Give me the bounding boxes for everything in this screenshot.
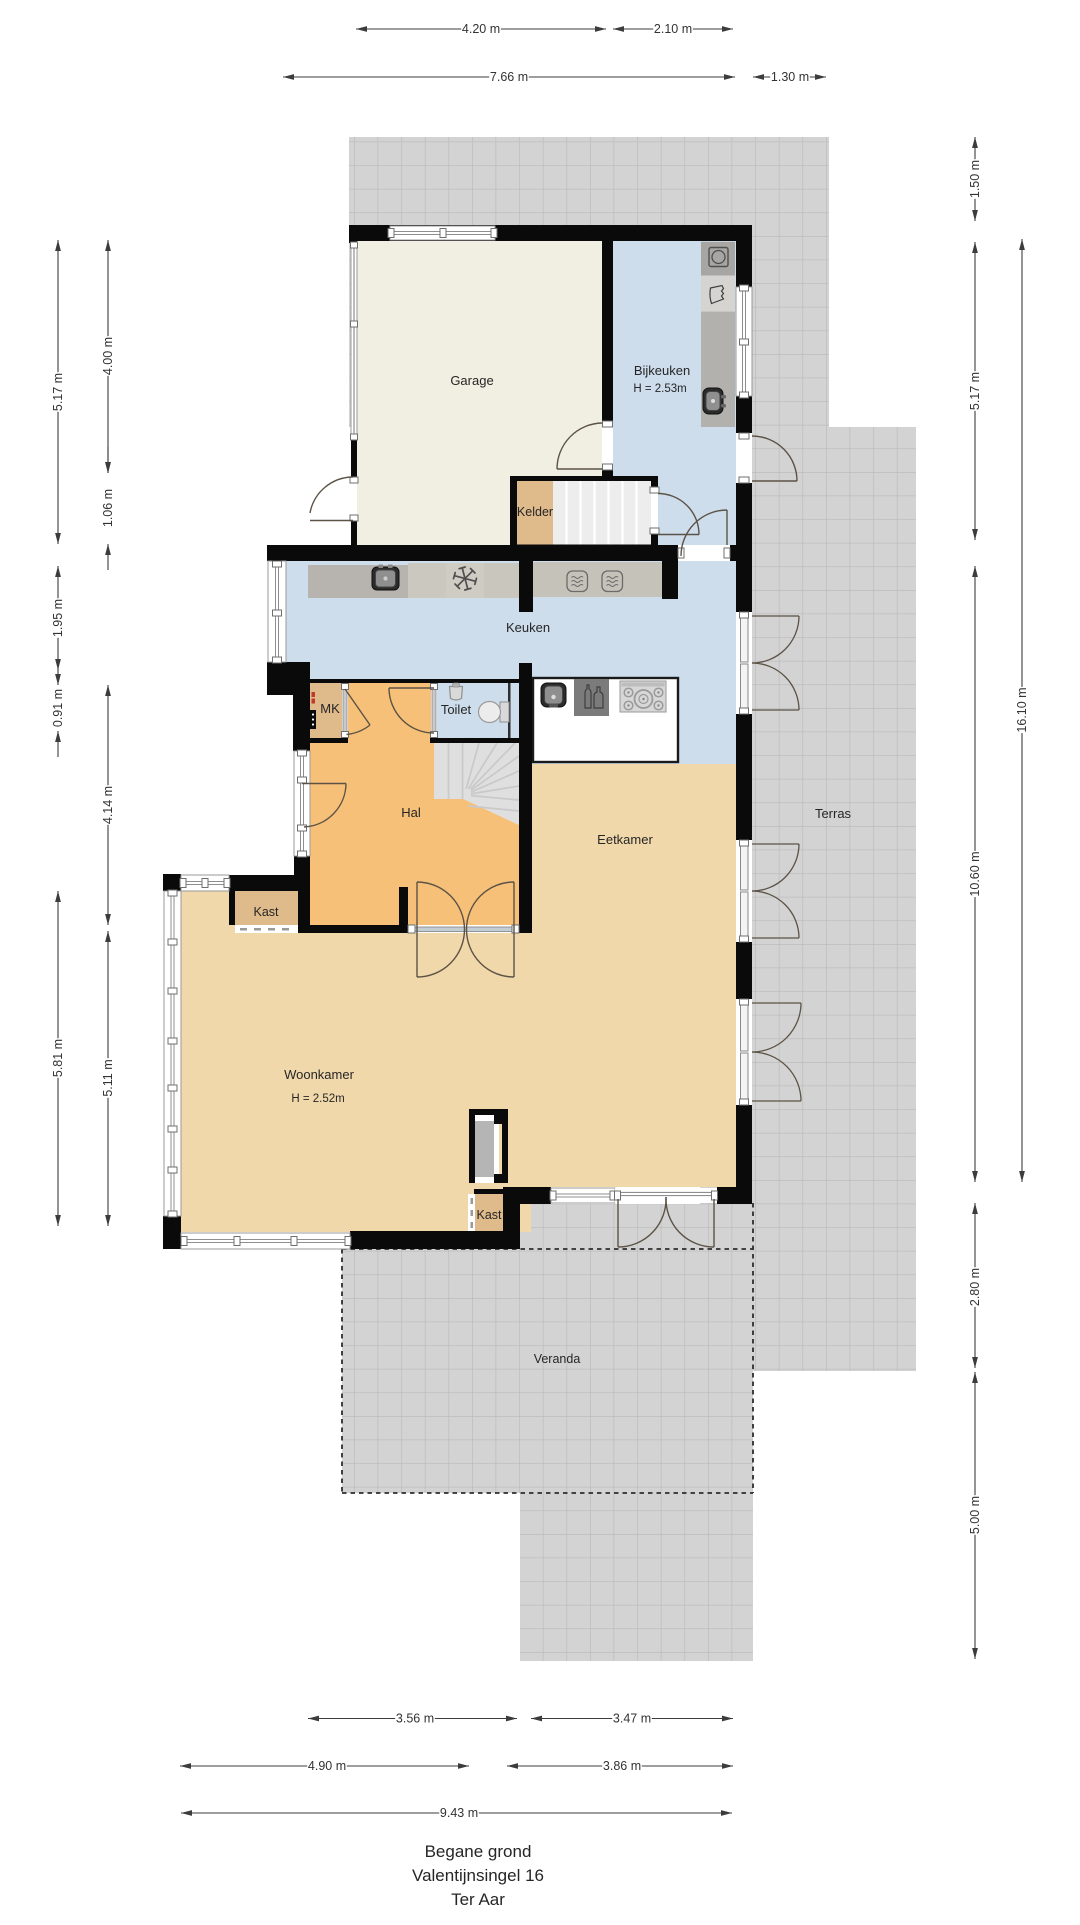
svg-text:5.00 m: 5.00 m [968,1496,982,1534]
svg-text:2.80 m: 2.80 m [968,1268,982,1306]
svg-text:10.60 m: 10.60 m [968,851,982,896]
svg-text:Eetkamer: Eetkamer [597,832,653,847]
svg-text:5.17 m: 5.17 m [968,372,982,410]
svg-text:Kast: Kast [253,905,279,919]
svg-text:Woonkamer: Woonkamer [284,1067,355,1082]
svg-text:H = 2.53m: H = 2.53m [633,383,686,395]
svg-text:5.81 m: 5.81 m [51,1039,65,1077]
svg-text:0.91 m: 0.91 m [51,689,65,727]
svg-text:Terras: Terras [815,806,852,821]
svg-text:4.20 m: 4.20 m [462,22,500,36]
svg-text:Kelder: Kelder [517,505,553,519]
svg-text:4.90 m: 4.90 m [308,1759,346,1773]
svg-text:H = 2.52m: H = 2.52m [291,1093,344,1105]
svg-text:7.66 m: 7.66 m [490,70,528,84]
svg-text:Begane grond: Begane grond [425,1842,532,1861]
svg-text:Ter Aar: Ter Aar [451,1890,505,1909]
svg-text:3.47 m: 3.47 m [613,1712,651,1726]
svg-text:Bijkeuken: Bijkeuken [634,363,690,378]
svg-text:Garage: Garage [450,373,493,388]
svg-text:3.56 m: 3.56 m [396,1712,434,1726]
svg-text:Hal: Hal [401,805,421,820]
svg-text:4.14 m: 4.14 m [101,786,115,824]
svg-text:Valentijnsingel 16: Valentijnsingel 16 [412,1866,544,1885]
svg-text:1.50 m: 1.50 m [968,160,982,198]
svg-text:Kast: Kast [476,1208,502,1222]
svg-text:16.10 m: 16.10 m [1015,687,1029,732]
svg-text:9.43 m: 9.43 m [440,1806,478,1820]
svg-text:MK: MK [320,701,340,716]
svg-text:1.30 m: 1.30 m [771,70,809,84]
svg-text:1.06 m: 1.06 m [101,489,115,527]
svg-text:3.86 m: 3.86 m [603,1759,641,1773]
svg-text:1.95 m: 1.95 m [51,599,65,637]
svg-text:Toilet: Toilet [441,702,472,717]
svg-text:Veranda: Veranda [534,1352,581,1366]
svg-text:4.00 m: 4.00 m [101,337,115,375]
svg-text:Keuken: Keuken [506,620,550,635]
svg-text:5.17 m: 5.17 m [51,373,65,411]
svg-text:5.11 m: 5.11 m [101,1059,115,1096]
svg-text:2.10 m: 2.10 m [654,22,692,36]
